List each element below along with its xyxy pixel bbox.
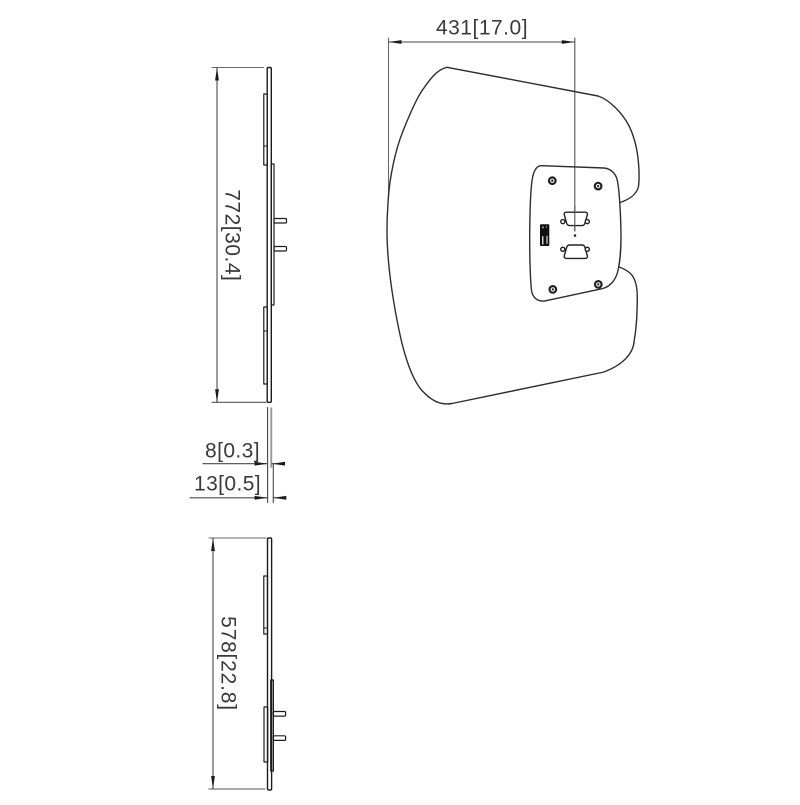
svg-text:578[22.8]: 578[22.8] <box>217 616 240 711</box>
svg-text:431[17.0]: 431[17.0] <box>436 17 528 40</box>
svg-text:8[0.3]: 8[0.3] <box>205 440 260 463</box>
svg-text:13[0.5]: 13[0.5] <box>194 473 261 496</box>
svg-text:772[30.4]: 772[30.4] <box>221 189 244 281</box>
